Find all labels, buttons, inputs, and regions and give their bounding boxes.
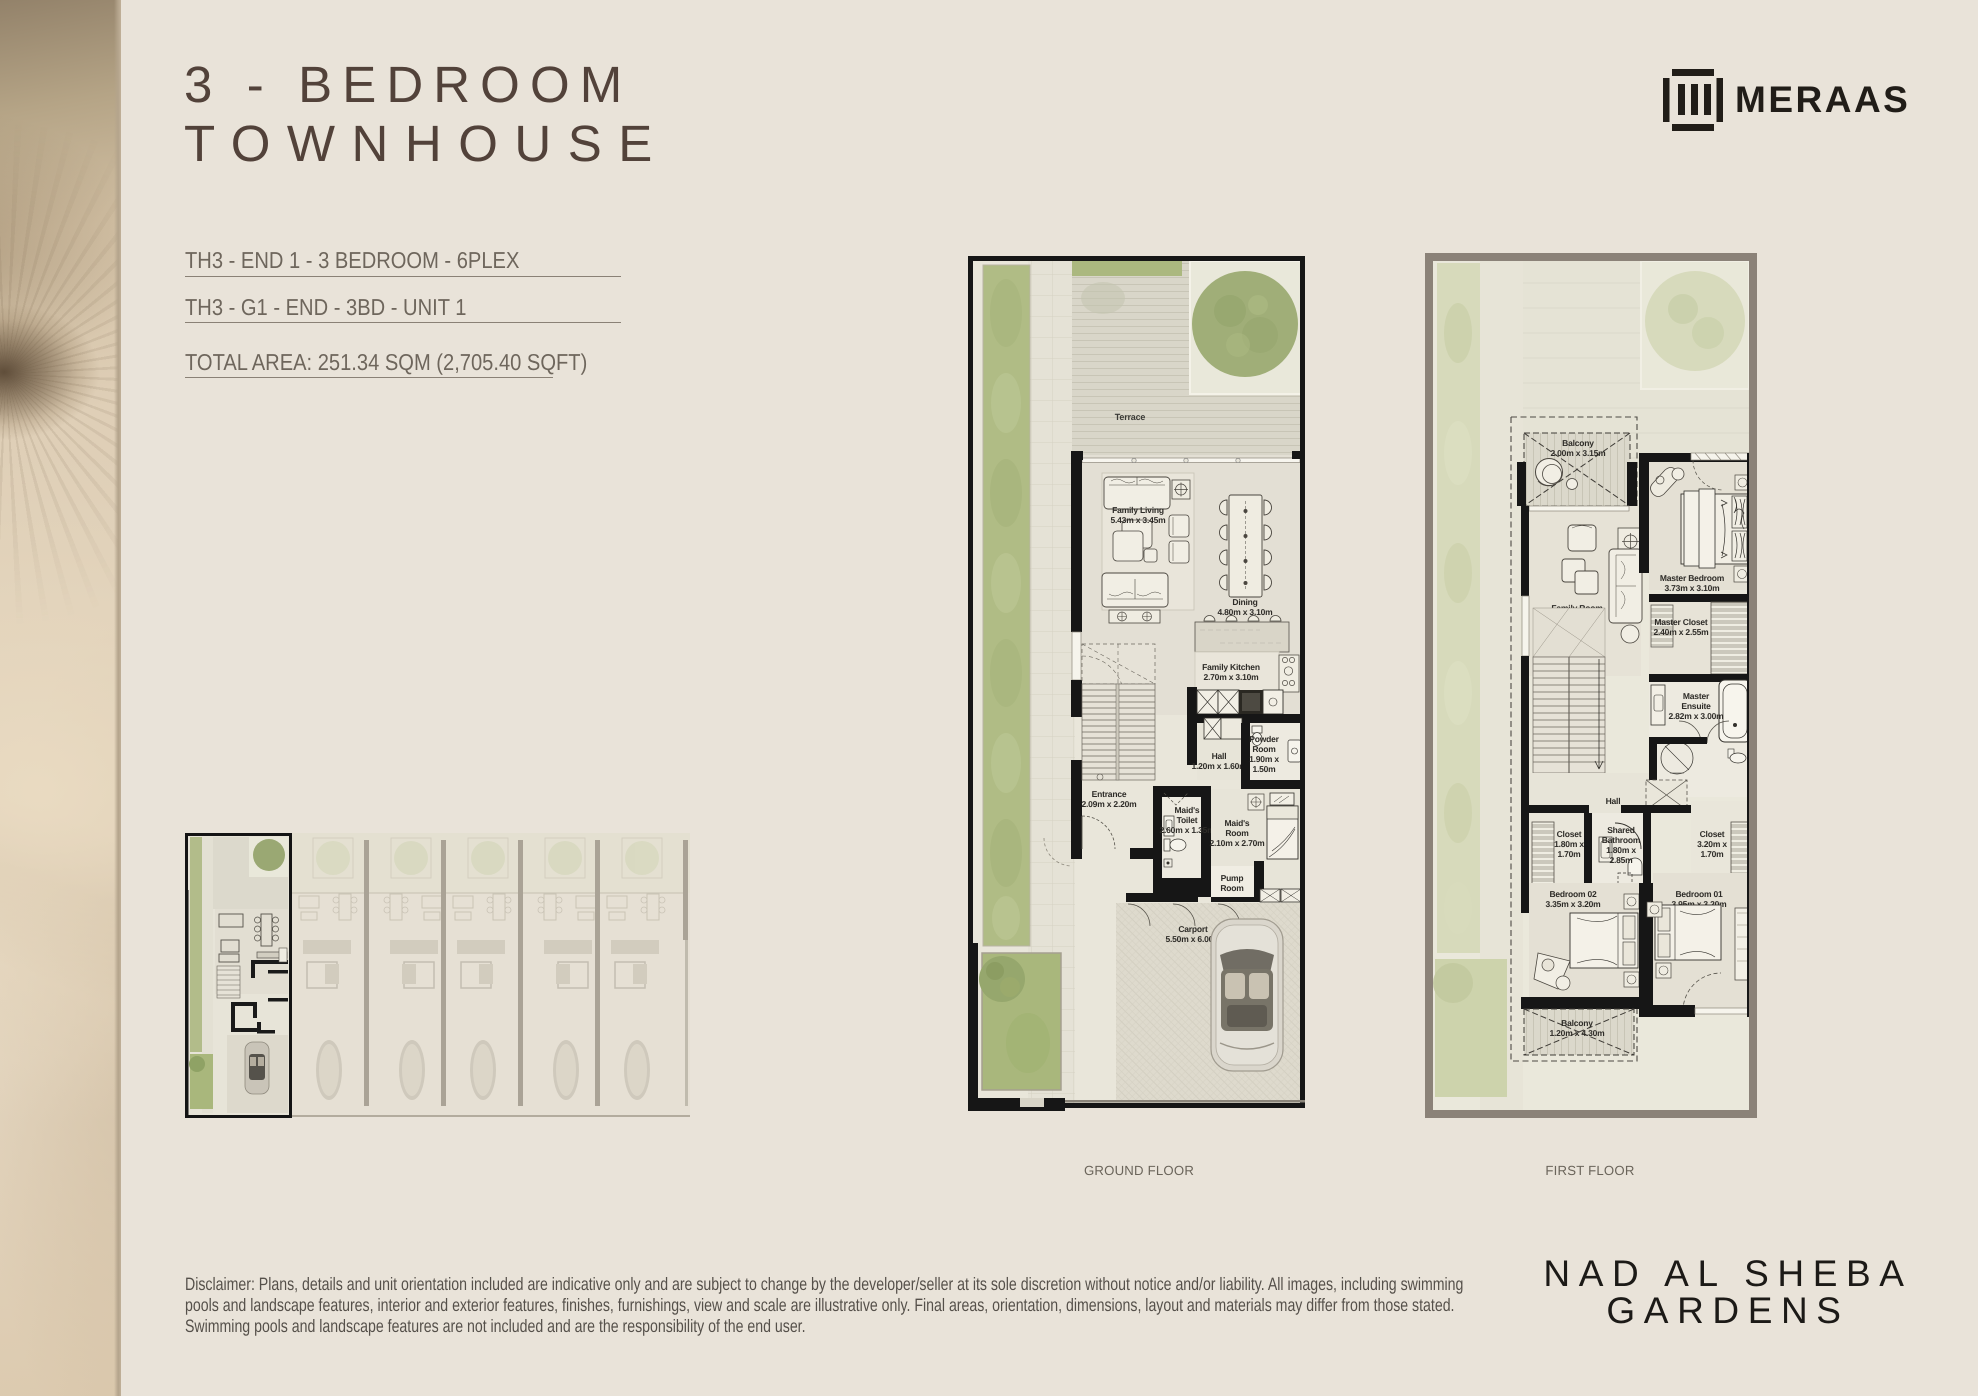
svg-text:1.20m x 4.30m: 1.20m x 4.30m [1549, 1028, 1605, 1038]
svg-text:Hall: Hall [1606, 796, 1621, 806]
svg-text:2.60m x 1.35m: 2.60m x 1.35m [1159, 825, 1215, 835]
svg-text:Bathroom: Bathroom [1602, 835, 1641, 845]
svg-text:2.09m x 2.20m: 2.09m x 2.20m [1081, 799, 1137, 809]
svg-text:3.35m x 3.20m: 3.35m x 3.20m [1545, 899, 1601, 909]
svg-text:Hall: Hall [1212, 751, 1227, 761]
svg-text:Closet: Closet [1557, 829, 1582, 839]
svg-text:MERAAS: MERAAS [1735, 79, 1910, 120]
svg-text:Closet: Closet [1700, 829, 1725, 839]
svg-text:Room: Room [1252, 744, 1276, 754]
svg-text:2.70m x 3.10m: 2.70m x 3.10m [1203, 672, 1259, 682]
svg-text:Family Living: Family Living [1112, 505, 1164, 515]
svg-text:Balcony: Balcony [1561, 1018, 1593, 1028]
svg-text:1.80m x: 1.80m x [1606, 845, 1636, 855]
svg-text:Entrance: Entrance [1092, 789, 1127, 799]
svg-text:Dining: Dining [1232, 597, 1257, 607]
svg-text:Bedroom 01: Bedroom 01 [1675, 889, 1723, 899]
svg-text:2.00m x 3.15m: 2.00m x 3.15m [1550, 448, 1606, 458]
svg-text:Master: Master [1683, 691, 1710, 701]
svg-text:1.70m: 1.70m [1700, 849, 1724, 859]
svg-text:3.73m x 3.10m: 3.73m x 3.10m [1664, 583, 1720, 593]
svg-text:1.80m x: 1.80m x [1554, 839, 1584, 849]
svg-text:1.90m x: 1.90m x [1249, 754, 1279, 764]
svg-text:Shared: Shared [1607, 825, 1635, 835]
svg-text:Family Kitchen: Family Kitchen [1202, 662, 1260, 672]
svg-text:Room: Room [1220, 883, 1244, 893]
svg-text:2.82m x 3.00m: 2.82m x 3.00m [1668, 711, 1724, 721]
svg-text:Room: Room [1225, 828, 1249, 838]
svg-text:Ensuite: Ensuite [1681, 701, 1711, 711]
svg-text:Master Bedroom: Master Bedroom [1660, 573, 1725, 583]
svg-text:2.85m: 2.85m [1609, 855, 1633, 865]
svg-text:3.20m x: 3.20m x [1697, 839, 1727, 849]
svg-text:Master Closet: Master Closet [1654, 617, 1708, 627]
svg-text:Terrace: Terrace [1115, 412, 1146, 422]
svg-text:Pump: Pump [1221, 873, 1244, 883]
svg-text:Maid's: Maid's [1175, 805, 1200, 815]
svg-text:5.43m x 3.45m: 5.43m x 3.45m [1110, 515, 1166, 525]
svg-text:Carport: Carport [1178, 924, 1208, 934]
svg-text:1.20m x 1.60m: 1.20m x 1.60m [1191, 761, 1247, 771]
svg-text:Bedroom 02: Bedroom 02 [1549, 889, 1597, 899]
svg-text:4.80m x 3.10m: 4.80m x 3.10m [1217, 607, 1273, 617]
svg-text:Powder: Powder [1249, 734, 1279, 744]
svg-text:2.40m x 2.55m: 2.40m x 2.55m [1653, 627, 1709, 637]
svg-text:Toilet: Toilet [1177, 815, 1198, 825]
svg-text:Maid's: Maid's [1225, 818, 1250, 828]
svg-text:1.50m: 1.50m [1252, 764, 1276, 774]
svg-text:Balcony: Balcony [1562, 438, 1594, 448]
svg-text:2.10m x 2.70m: 2.10m x 2.70m [1209, 838, 1265, 848]
svg-text:1.70m: 1.70m [1557, 849, 1581, 859]
